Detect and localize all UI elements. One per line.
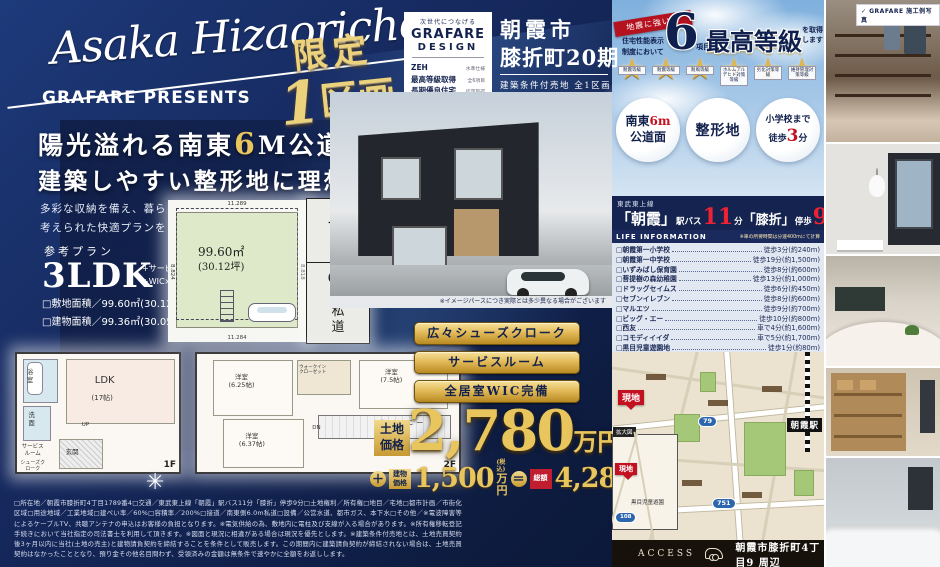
map-inset-park-label: 黒目児童遊園 [631, 500, 664, 507]
access-bar: ACCESS 朝霞市膝折町4丁目9 周辺 [612, 540, 824, 567]
entrance-label: 玄関 [66, 448, 79, 456]
location-city: 朝霞市 [500, 14, 575, 44]
life-info-row: □セブンイレブン徒歩8分(約600m) [616, 293, 820, 303]
parked-car-shape [248, 303, 296, 322]
construction-photo-label: ✓ GRAFARE 施工例写真 [856, 4, 940, 26]
lot-dimension-left: 8.824 [169, 264, 175, 280]
life-info-row: □ドラッグセイムス徒歩6分(約450m) [616, 283, 820, 293]
design-brand-name: GRAFARE [404, 27, 492, 42]
bathroom-label: 浴室 [27, 368, 34, 384]
star-rating-item: ★劣化対策等級 [752, 54, 784, 90]
feature-badge-shoes-closet: 広々シューズクローク [414, 322, 580, 345]
map-park-area [744, 422, 786, 476]
ldk-label: LDK [95, 375, 115, 388]
star-rating-item: ★ホルムアルデヒド対策等級 [718, 54, 750, 90]
bedroom-637-label: 洋室 (6.37帖) [239, 432, 265, 448]
design-divider [412, 57, 484, 58]
building-area: □建物面積／99.36㎡(30.05坪) [42, 314, 187, 332]
compass-icon: ✳ [146, 470, 164, 495]
design-tagline: 次世代につなげる [404, 17, 492, 26]
grafare-design-box: 次世代につなげる GRAFARE DESIGN ZEH 水準仕様 最高等級取得 … [404, 12, 492, 96]
bedroom-625-label: 洋室 (6.25帖) [228, 373, 254, 389]
feature-circle-school: 小学校まで 徒歩3分 [756, 98, 820, 162]
design-spec-row: ZEH 水準仕様 [404, 62, 492, 74]
performance-tail: を取得 します [802, 26, 823, 46]
star-rating-item: ★耐震等級 [616, 54, 648, 90]
plan-type: 3LDK [42, 256, 153, 296]
design-spec-row: 最高等級取得 全6項目 [404, 74, 492, 86]
brand-presents-label: GRAFARE PRESENTS [42, 88, 251, 108]
stairs-down-label: DN [312, 425, 320, 432]
grafare-check-icon: ✓ [861, 8, 867, 15]
site-area: □敷地面積／99.60㎡(30.12坪) [42, 296, 187, 314]
floorplan-1f: 浴室 洗面 LDK (17帖) UP サービスルーム 玄関 シューズクローク 1… [15, 352, 181, 474]
equals-icon: ＝ [511, 471, 527, 487]
map-inset-site-marker: 現地 [615, 463, 637, 475]
life-info-row: □菩提樹の森幼稚園徒歩13分(約1,000m) [616, 273, 820, 283]
washroom-label: 洗面 [28, 411, 35, 427]
rating-stars: ★耐震等級 ★耐震等級 ★耐風等級 ★ホルムアルデヒド対策等級 ★劣化対策等級 … [616, 54, 818, 90]
house-window [454, 148, 503, 200]
land-price-badge: 土地価格 [374, 420, 410, 456]
price-total-row: ＋ 建物価格 1,500 (税込)万円 ＝ 総額 4,280 (税込)万円 [370, 460, 615, 497]
total-price-badge: 総額 [530, 469, 552, 489]
star-rating-item: ★耐風等級 [684, 54, 716, 90]
star-rating-item: ★維持管理対策等級 [786, 54, 818, 90]
shoes-closet-label: シューズクローク [20, 460, 45, 473]
car-illustration [507, 269, 589, 295]
floor-1f-label: 1F [164, 460, 176, 470]
wic-label: ウォークインクローゼット [299, 365, 326, 376]
map-railway-line [805, 352, 810, 452]
life-info-row: □いずみばし保育園徒歩8分(約600m) [616, 264, 820, 274]
building-price-amount: 1,500 [414, 463, 494, 494]
legal-fine-print: □所在地／朝霞市膝折町4丁目1789番4□交通／東武東上線「朝霞」駅バス11分「… [14, 498, 462, 560]
star-rating-item: ★耐震等級 [650, 54, 682, 90]
access-label: ACCESS [638, 549, 695, 559]
plus-icon: ＋ [370, 471, 386, 487]
photo-kitchen-view [826, 256, 940, 366]
area-map: 79 751 現地 朝霞駅 拡大図 現地 黒目児童遊園 108 [612, 352, 824, 540]
life-info-row: □黒目児童遊園地徒歩1分(約80m) [616, 342, 820, 352]
house-wood-accent [454, 209, 499, 257]
stairs-up-label: UP [82, 422, 89, 429]
life-info-row: □朝霞第一小学校徒歩3分(約240m) [616, 244, 820, 254]
photo-bathroom [826, 458, 940, 567]
life-information-header: LIFE INFORMATION ※車の所要時間は分速400mにて計算 [612, 230, 824, 243]
life-information-note: ※車の所要時間は分速400mにて計算 [740, 233, 820, 240]
route-shield: 751 [712, 498, 736, 509]
lot-dimension-top: 11.289 [168, 201, 306, 207]
location-divider [500, 74, 608, 75]
render-disclaimer: ※イメージパースにつき実際とは多少異なる場合がございます [330, 296, 612, 308]
map-inset-title: 拡大図 [613, 427, 636, 437]
feature-circle-shaped-lot: 整形地 [686, 98, 750, 162]
train-access-text: 「朝霞」 駅バス 11 分 「膝折」 停歩 9 分 [616, 204, 820, 230]
house-render-image: ※イメージパースにつき実際とは多少異なる場合がございます [330, 92, 612, 308]
map-station-label: 朝霞駅 [787, 418, 822, 432]
life-info-row: □マルエツ徒歩9分(約700m) [616, 303, 820, 313]
service-room-label: サービスルーム [20, 444, 45, 458]
lot-diagram: 11.289 11.284 8.824 8.818 99.60㎡ (30.12坪… [168, 200, 306, 342]
headline-number: 6 [234, 127, 258, 162]
lot-dimension-bottom: 11.284 [168, 335, 306, 341]
photo-bright-room [826, 144, 940, 254]
flyer-canvas: Asaka Hizaoricho GRAFARE PRESENTS 限定 1区画… [0, 0, 940, 567]
feature-circle-road: 南東6m 公道面 [616, 98, 680, 162]
access-address: 朝霞市膝折町4丁目9 周辺 [735, 539, 824, 567]
map-park-area [794, 470, 814, 496]
train-access-band: 東武東上線 「朝霞」 駅バス 11 分 「膝折」 停歩 9 分 [612, 196, 824, 230]
building-price-badge: 建物価格 [389, 469, 411, 489]
life-info-row: □西友車で4分(約1,600m) [616, 322, 820, 332]
land-price-amount: 2,780万円 [408, 398, 621, 464]
map-site-marker: 現地 [618, 390, 644, 405]
location-subtitle: 建築条件付売地 全1区画 [500, 79, 611, 91]
lot-area-label: 99.60㎡ (30.12坪) [180, 245, 318, 274]
route-shield: 79 [698, 416, 717, 427]
lot-steps-shape [220, 290, 234, 322]
life-information-panel: LIFE INFORMATION ※車の所要時間は分速400mにて計算 □朝霞第… [612, 230, 824, 352]
feature-badge-service-room: サービスルーム [414, 351, 580, 374]
house-window [381, 157, 422, 200]
car-icon [705, 548, 723, 559]
plan-areas: □敷地面積／99.60㎡(30.12坪) □建物面積／99.36㎡(30.05坪… [42, 296, 187, 332]
ldk-size-label: (17帖) [92, 394, 113, 403]
ldk-area [66, 359, 175, 425]
location-town: 膝折町20期 [500, 42, 619, 72]
life-info-row: □コモディイイダ車で5分(約1,700m) [616, 332, 820, 342]
bedroom-75-label: 洋室 (7.5帖) [380, 368, 402, 384]
map-inset: 拡大図 現地 黒目児童遊園 108 [612, 434, 678, 530]
life-info-row: □朝霞第一中学校徒歩19分(約1,500m) [616, 254, 820, 264]
life-info-row: □ビッグ・エー徒歩10分(約800m) [616, 313, 820, 323]
route-shield: 108 [615, 512, 636, 523]
map-park-area [700, 372, 716, 392]
photo-wood-shelf [826, 368, 940, 456]
